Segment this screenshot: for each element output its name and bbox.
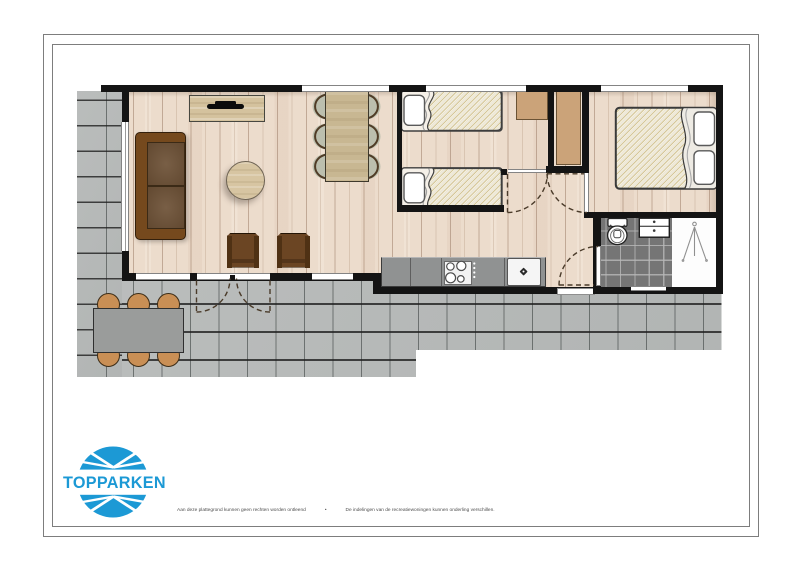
svg-text:TOPPARKEN: TOPPARKEN (63, 474, 166, 492)
